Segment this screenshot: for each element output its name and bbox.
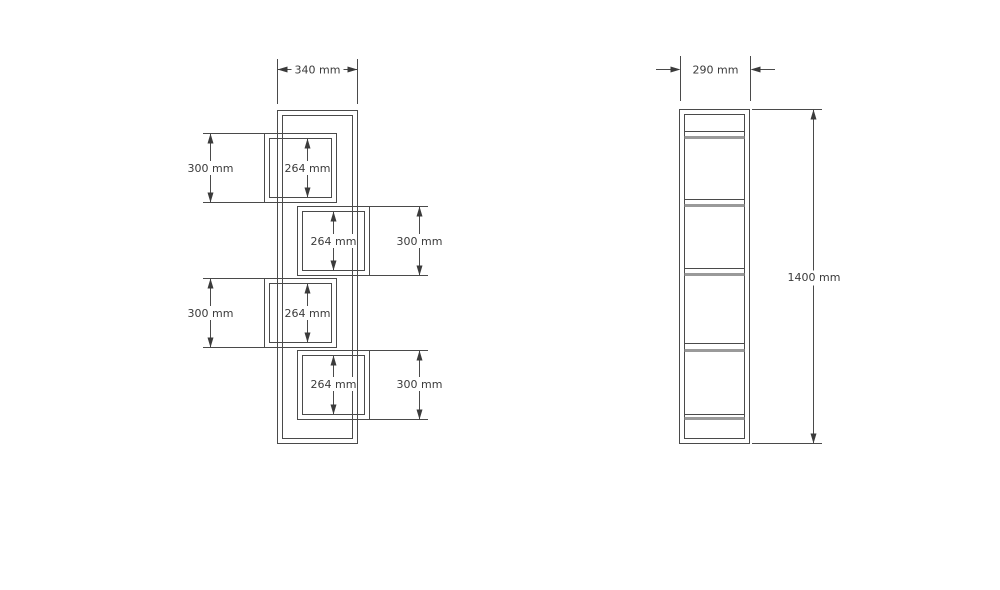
dim-side-height: 1400 mm <box>752 110 844 444</box>
dim-compartment-2: 264 mm <box>311 212 357 271</box>
arrow-down-icon <box>417 266 423 276</box>
front-left-dim-label-1: 300 mm <box>188 162 234 175</box>
arrow-down-icon <box>208 193 214 203</box>
side-shelf-1 <box>685 132 745 138</box>
front-frame-outer <box>278 111 358 444</box>
arrow-down-icon <box>811 434 817 444</box>
front-right-dim-label-2: 300 mm <box>397 378 443 391</box>
arrow-up-icon <box>305 139 311 149</box>
front-width-dim-label: 340 mm <box>295 64 341 77</box>
arrow-up-icon <box>305 284 311 294</box>
dim-side-width: 290 mm <box>656 56 775 101</box>
arrow-up-icon <box>417 351 423 361</box>
arrow-up-icon <box>417 207 423 217</box>
arrow-down-icon <box>417 410 423 420</box>
dim-front-right-2: 300 mm <box>369 351 446 420</box>
front-right-dim-label-1: 300 mm <box>397 235 443 248</box>
dim-front-left-2: 300 mm <box>185 279 265 348</box>
arrow-left-icon <box>751 67 761 73</box>
arrow-down-icon <box>331 261 337 271</box>
compartment-dim-label-4: 264 mm <box>311 378 357 391</box>
dim-compartment-3: 264 mm <box>285 284 331 343</box>
dim-front-left-1: 300 mm <box>185 134 265 203</box>
front-frame <box>278 111 358 444</box>
side-shelf-5 <box>685 415 745 419</box>
side-width-dim-label: 290 mm <box>693 64 739 77</box>
bookshelf-dimension-drawing: 340 mm 300 mm 300 mm <box>0 0 1000 590</box>
dim-front-right-1: 300 mm <box>369 207 446 276</box>
side-frame-outer <box>680 110 750 444</box>
side-shelf-4 <box>685 344 745 351</box>
dim-compartment-1: 264 mm <box>285 139 331 198</box>
compartment-dim-label-1: 264 mm <box>285 162 331 175</box>
side-height-dim-label: 1400 mm <box>788 271 841 284</box>
side-shelf-3 <box>685 269 745 275</box>
front-left-dim-label-2: 300 mm <box>188 307 234 320</box>
arrow-down-icon <box>305 333 311 343</box>
arrow-up-icon <box>208 279 214 289</box>
arrow-down-icon <box>331 405 337 415</box>
side-view: 290 mm 1400 mm <box>656 56 844 444</box>
compartment-dim-label-3: 264 mm <box>285 307 331 320</box>
side-frame <box>680 110 750 444</box>
arrow-left-icon <box>278 67 288 73</box>
arrow-right-icon <box>348 67 358 73</box>
side-shelf-2 <box>685 200 745 206</box>
dim-front-width: 340 mm <box>278 59 358 104</box>
arrow-up-icon <box>811 110 817 120</box>
compartment-dim-label-2: 264 mm <box>311 235 357 248</box>
front-view: 340 mm 300 mm 300 mm <box>185 59 446 444</box>
dim-compartment-4: 264 mm <box>311 356 357 415</box>
arrow-up-icon <box>331 212 337 222</box>
technical-drawing-canvas: 340 mm 300 mm 300 mm <box>0 0 1000 590</box>
arrow-up-icon <box>208 134 214 144</box>
side-frame-inner <box>685 115 745 439</box>
arrow-up-icon <box>331 356 337 366</box>
arrow-down-icon <box>305 188 311 198</box>
arrow-right-icon <box>671 67 681 73</box>
arrow-down-icon <box>208 338 214 348</box>
